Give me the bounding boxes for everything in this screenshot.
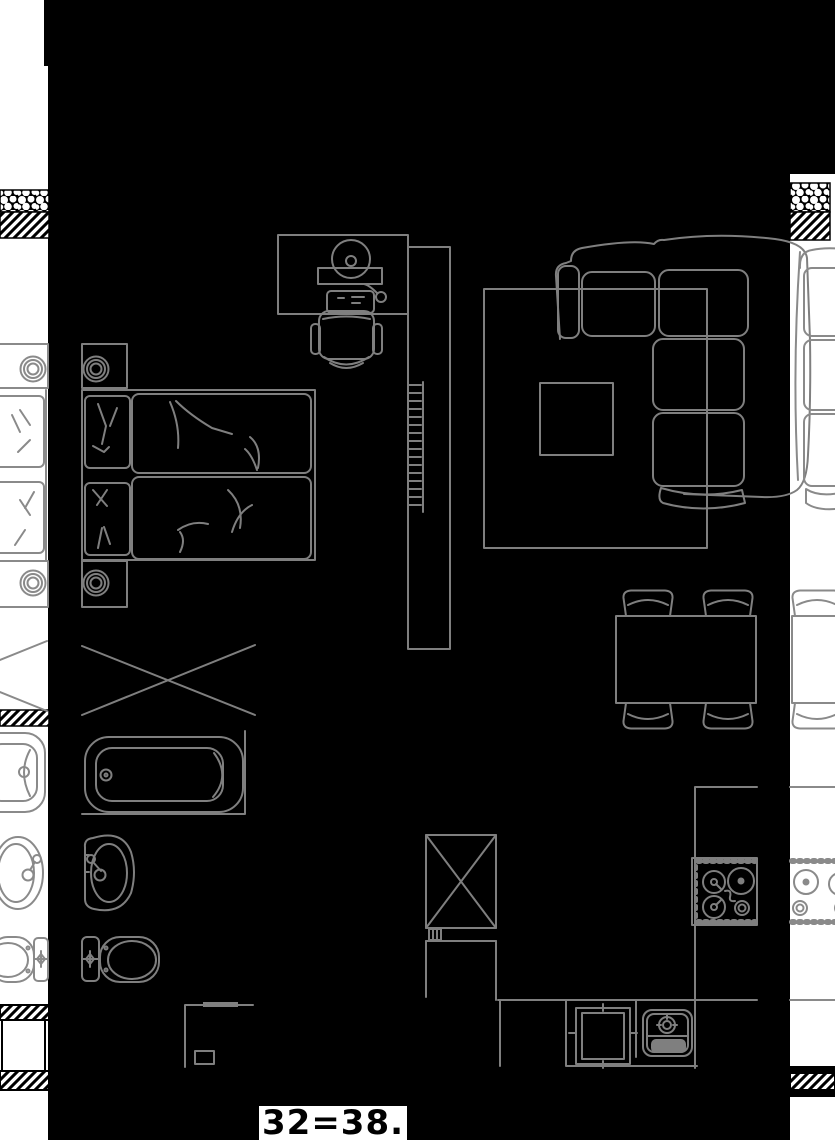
wall-edge-line	[44, 0, 49, 66]
corner-sofa	[556, 236, 810, 509]
drain-icon	[101, 770, 112, 781]
rug	[484, 289, 707, 548]
wall-section-hatch-right-bottom	[790, 1073, 835, 1090]
nightstand-top	[82, 344, 127, 388]
burner-icon	[735, 901, 749, 915]
speaker-disc-icon	[332, 240, 370, 278]
duvet	[132, 477, 311, 559]
wall-section-hatch-right-top	[790, 183, 830, 240]
dining-chair	[623, 703, 672, 729]
wall-section-hatch-left-mid	[0, 710, 49, 726]
cooktop	[692, 858, 757, 925]
nightstand-bottom	[82, 561, 127, 607]
pillow	[85, 396, 130, 468]
bathtub	[82, 731, 245, 814]
wall-section-hatch-left-top	[0, 190, 49, 238]
dimension-label: 32=38.	[259, 1106, 407, 1140]
door-threshold	[203, 1002, 238, 1007]
monitor-icon	[318, 268, 382, 284]
kitchen-sink	[643, 1010, 692, 1056]
dining-table	[616, 616, 756, 703]
kitchen-counter	[498, 787, 757, 1068]
keyboard-icon	[327, 291, 374, 313]
floor-plan-canvas: 32=38.	[0, 0, 835, 1140]
refrigerator-x-symbol	[426, 835, 496, 1000]
wall-section-hatch-left-bottom	[0, 1005, 49, 1090]
dining-chair	[703, 591, 752, 617]
wardrobe-x-symbol	[82, 645, 255, 715]
dining-chair	[623, 591, 672, 617]
dining-chair	[703, 703, 752, 729]
coffee-table	[540, 383, 613, 455]
desk	[278, 235, 408, 314]
floor-plan-drawing	[0, 0, 835, 1140]
radiator-cabinet	[408, 247, 450, 649]
office-chair	[311, 311, 382, 368]
duvet	[132, 394, 311, 473]
pillow	[85, 483, 130, 555]
toilet	[82, 937, 159, 982]
washbasin	[85, 835, 134, 910]
double-bed	[82, 390, 315, 560]
hallway-corner	[185, 1002, 253, 1067]
dishwasher	[569, 1004, 637, 1068]
